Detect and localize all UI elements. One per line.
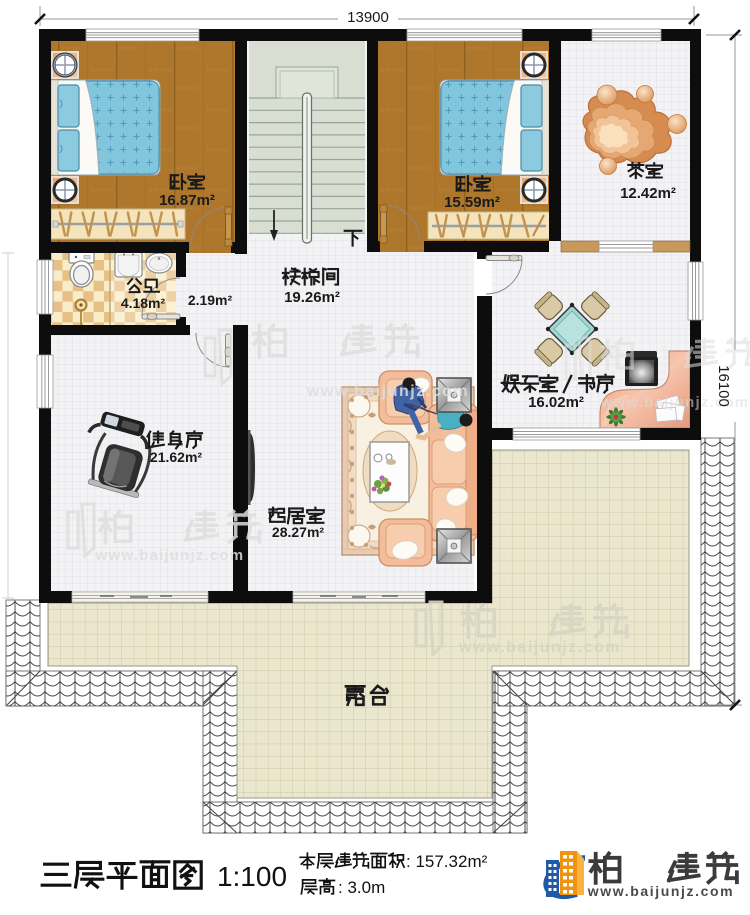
- svg-text:21.62m²: 21.62m²: [150, 449, 202, 465]
- svg-text:1:100: 1:100: [217, 861, 287, 892]
- svg-text:www.baijunjz.com: www.baijunjz.com: [458, 639, 621, 656]
- svg-text:15.59m²: 15.59m²: [444, 194, 500, 211]
- svg-text:4.18m²: 4.18m²: [121, 295, 166, 311]
- svg-text:19.26m²: 19.26m²: [284, 289, 340, 306]
- svg-text:13900: 13900: [347, 9, 389, 26]
- svg-text:16.87m²: 16.87m²: [159, 192, 215, 209]
- svg-text:www.baijunjz.com: www.baijunjz.com: [587, 883, 734, 899]
- svg-text:www.baijunjz.com: www.baijunjz.com: [306, 383, 469, 400]
- svg-text:: 157.32m²: : 157.32m²: [406, 852, 488, 871]
- svg-text:28.27m²: 28.27m²: [272, 524, 324, 540]
- svg-text:12.42m²: 12.42m²: [620, 185, 676, 202]
- svg-text:16.02m²: 16.02m²: [528, 394, 584, 411]
- svg-text:: 3.0m: : 3.0m: [338, 878, 385, 897]
- svg-text:www.baijunjz.com: www.baijunjz.com: [95, 547, 245, 564]
- svg-text:2.19m²: 2.19m²: [188, 292, 233, 308]
- svg-text:16100: 16100: [715, 365, 732, 407]
